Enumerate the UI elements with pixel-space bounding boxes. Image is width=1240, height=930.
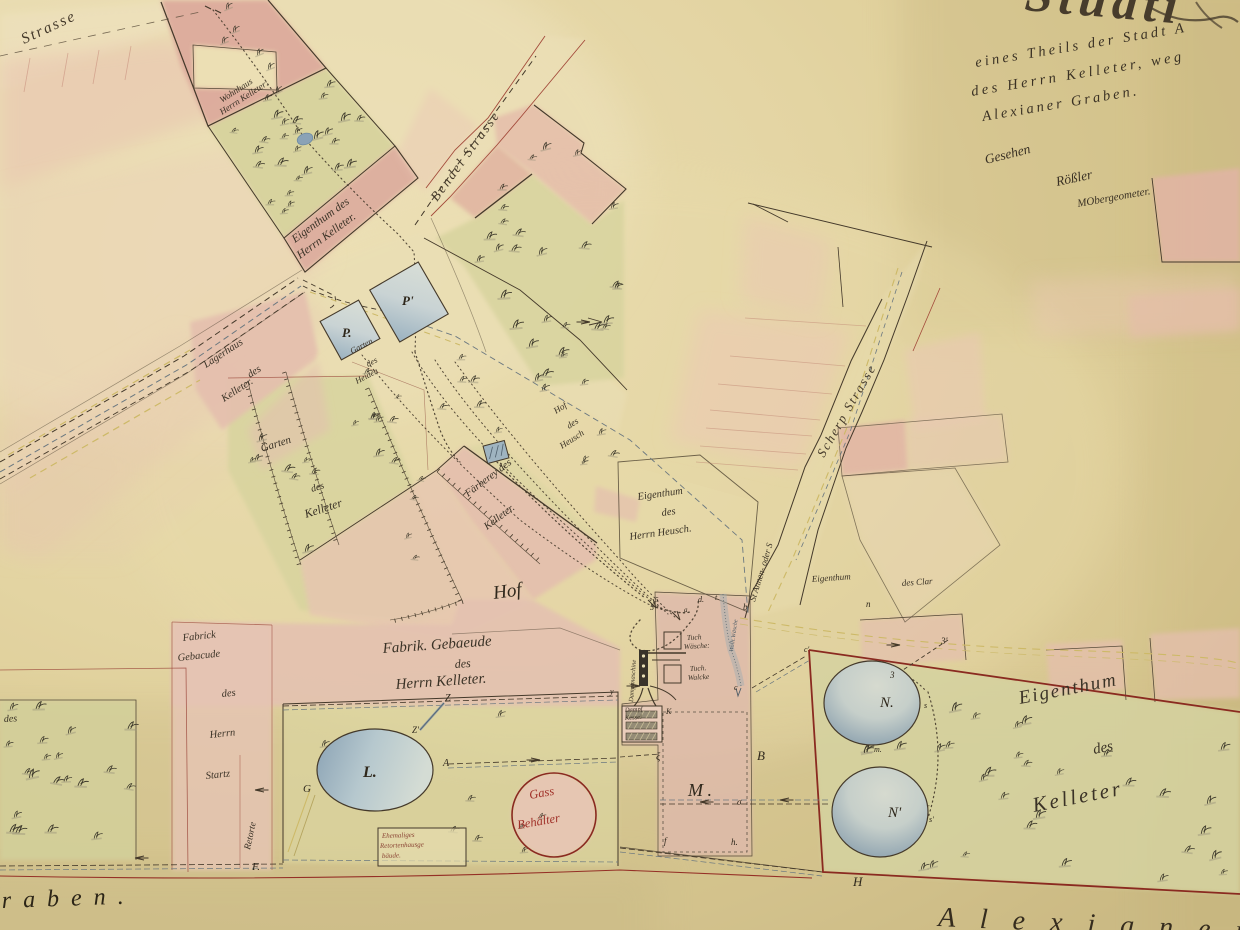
svg-text:F.: F. — [251, 861, 260, 873]
svg-text:m.: m. — [874, 745, 882, 754]
svg-text:P.: P. — [342, 325, 352, 340]
svg-text:d.: d. — [698, 595, 704, 604]
svg-text:r a b e n .: r a b e n . — [1, 884, 127, 914]
svg-text:des: des — [221, 688, 236, 700]
svg-text:bäude.: bäude. — [382, 851, 401, 860]
svg-text:s': s' — [929, 815, 934, 824]
svg-text:Retortenhausge: Retortenhausge — [379, 840, 424, 850]
svg-text:N.: N. — [879, 695, 894, 711]
svg-text:Kessel: Kessel — [624, 714, 643, 722]
svg-text:ξ: ξ — [656, 752, 661, 763]
svg-text:b: b — [743, 602, 748, 612]
svg-text:Wäsche:: Wäsche: — [684, 641, 710, 651]
svg-text:M .: M . — [687, 780, 712, 800]
svg-text:s: s — [924, 701, 927, 710]
svg-text:L.: L. — [362, 764, 377, 781]
svg-text:Ehemaliges: Ehemaliges — [381, 831, 415, 840]
svg-text:Z': Z' — [412, 725, 420, 735]
svg-text:H: H — [852, 874, 863, 889]
svg-text:n: n — [866, 599, 871, 609]
svg-text:a: a — [684, 606, 688, 614]
svg-text:N': N' — [887, 805, 902, 821]
svg-text:5: 5 — [650, 603, 654, 612]
svg-text:Z: Z — [445, 693, 451, 704]
svg-text:Dampf: Dampf — [624, 706, 644, 714]
svg-text:3': 3' — [940, 636, 949, 646]
svg-text:y: y — [609, 687, 614, 696]
svg-text:B: B — [757, 748, 765, 763]
svg-text:c: c — [734, 683, 738, 692]
svg-text:G: G — [303, 783, 311, 795]
svg-text:3: 3 — [889, 670, 895, 680]
svg-text:des: des — [4, 713, 18, 725]
svg-text:h.: h. — [731, 837, 738, 847]
svg-text:Walcke: Walcke — [688, 672, 710, 682]
svg-text:σ: σ — [737, 797, 742, 807]
svg-text:c': c' — [804, 645, 810, 654]
svg-text:A: A — [442, 758, 450, 769]
svg-text:P': P' — [402, 293, 414, 308]
svg-text:Hof: Hof — [491, 579, 526, 604]
svg-text:t.: t. — [715, 593, 719, 602]
svg-text:des: des — [454, 656, 471, 671]
svg-text:K: K — [665, 707, 672, 716]
svg-text:des: des — [661, 506, 676, 519]
svg-text:5: 5 — [655, 596, 659, 604]
